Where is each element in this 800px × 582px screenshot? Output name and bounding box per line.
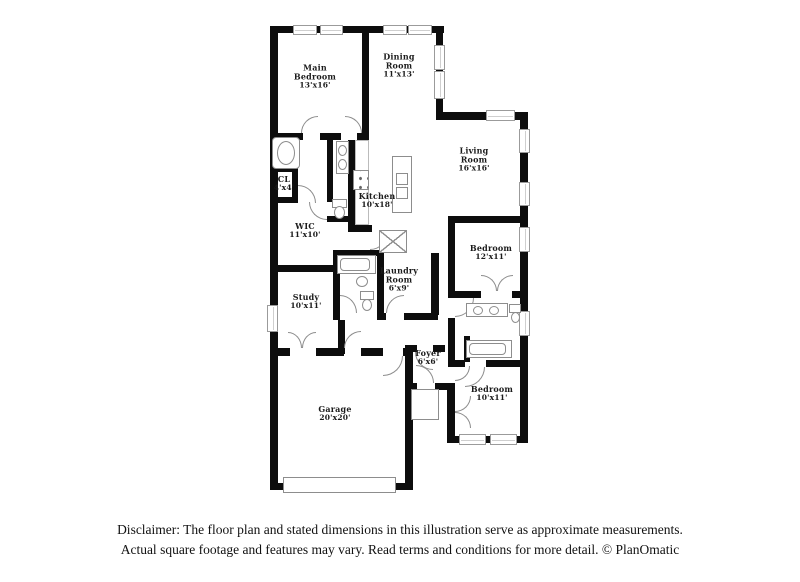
garage-door bbox=[283, 477, 396, 493]
wall-laundry-bottom-1 bbox=[377, 313, 386, 320]
door-arc-wic bbox=[309, 202, 327, 220]
room-label-study: Study 10'x11' bbox=[290, 293, 321, 311]
wall-garage-top-2 bbox=[316, 348, 344, 356]
room-dims: 11'x13' bbox=[383, 71, 414, 80]
window bbox=[434, 71, 445, 99]
room-dims: 16'x16' bbox=[458, 165, 489, 174]
wall-bedroom1-west-a bbox=[448, 216, 455, 298]
wall-wic-study bbox=[270, 265, 334, 272]
room-dims: 11'x10' bbox=[289, 231, 320, 240]
sink bbox=[338, 159, 347, 170]
room-label-garage: Garage 20'x20' bbox=[318, 405, 351, 423]
wall-mainbedroom-bottom-2 bbox=[320, 133, 341, 140]
door-arc-main-bath bbox=[301, 116, 318, 133]
room-dims: 4'x4' bbox=[274, 184, 295, 193]
room-label-kitchen: Kitchen 10'x18' bbox=[359, 192, 396, 210]
wall-garage-top-1 bbox=[270, 348, 290, 356]
window bbox=[519, 182, 530, 206]
room-dims: 10'x11' bbox=[290, 302, 321, 311]
room-dims: 12'x11' bbox=[470, 253, 512, 262]
room-label-bedroom-10x11: Bedroom 10'x11' bbox=[471, 385, 513, 403]
window bbox=[408, 25, 432, 35]
sink bbox=[338, 145, 347, 156]
door-arc-laundry bbox=[386, 295, 404, 313]
room-label-foyer: Foyer 6'x6' bbox=[415, 349, 441, 367]
wall-laundry-east bbox=[431, 253, 439, 315]
room-dims: 10'x11' bbox=[471, 394, 513, 403]
window bbox=[383, 25, 407, 35]
room-name: Dining Room bbox=[383, 53, 414, 71]
water-heater bbox=[379, 230, 407, 253]
toilet-bowl bbox=[334, 206, 345, 219]
wall-kitchen-bottom bbox=[348, 225, 372, 232]
window bbox=[434, 45, 445, 70]
toilet-bowl-bath3 bbox=[511, 312, 520, 323]
wall-mainbedroom-bottom-3 bbox=[357, 133, 369, 140]
room-name: Laundry Room bbox=[380, 267, 418, 285]
island-cooktop bbox=[396, 173, 408, 185]
door-arc-closet-cl bbox=[298, 185, 316, 203]
sink-bath2 bbox=[356, 276, 368, 287]
window bbox=[267, 305, 278, 332]
room-name: Main Bedroom bbox=[294, 64, 336, 82]
room-label-dining-room: Dining Room 11'x13' bbox=[383, 53, 414, 80]
room-label-closet: CL 4'x4' bbox=[274, 175, 295, 193]
window bbox=[490, 434, 517, 445]
room-dims: 6'x9' bbox=[380, 285, 418, 294]
wall-bedroom1-top bbox=[448, 216, 528, 223]
door-arc-study-bifold-left bbox=[288, 332, 302, 348]
front-porch bbox=[411, 389, 439, 420]
door-arc-hall bbox=[344, 331, 361, 348]
room-dims: 13'x16' bbox=[294, 82, 336, 91]
disclaimer-line-1: Disclaimer: The floor plan and stated di… bbox=[0, 520, 800, 540]
sink bbox=[489, 306, 499, 315]
window bbox=[293, 25, 317, 35]
room-label-living-room: Living Room 16'x16' bbox=[458, 147, 489, 174]
door-arc-bedroom1-closet-right bbox=[497, 275, 513, 291]
room-dims: 20'x20' bbox=[318, 414, 351, 423]
door-arc-bath2 bbox=[340, 295, 357, 313]
door-arc-garage-entry bbox=[383, 356, 403, 376]
door-arc-bedroom2-closet-top bbox=[455, 396, 471, 412]
wall-bath3-bottom-r bbox=[486, 360, 528, 367]
room-label-bedroom-12x11: Bedroom 12'x11' bbox=[470, 244, 512, 262]
floor-plan-illustration: Main Bedroom 13'x16' Dining Room 11'x13'… bbox=[0, 0, 800, 582]
window bbox=[519, 129, 530, 153]
wall-mainbedroom-dining bbox=[362, 26, 369, 140]
island-sink bbox=[396, 187, 408, 199]
disclaimer-line-2: Actual square footage and features may v… bbox=[0, 540, 800, 560]
wall-bedroom1-west-b bbox=[448, 318, 455, 362]
room-label-wic: WIC 11'x10' bbox=[289, 222, 320, 240]
window bbox=[459, 434, 486, 445]
door-arc-study-bifold-right bbox=[302, 332, 316, 348]
shower-basin bbox=[277, 141, 295, 165]
stove bbox=[353, 170, 369, 190]
room-dims: 10'x18' bbox=[359, 201, 396, 210]
wall-hall-west-low bbox=[447, 383, 455, 443]
wall-garage-top-4 bbox=[403, 348, 409, 356]
bathtub-bath2-inner bbox=[340, 258, 370, 271]
wall-outer-right bbox=[520, 112, 528, 443]
room-label-laundry-room: Laundry Room 6'x9' bbox=[380, 267, 418, 294]
wall-mainbath-divider bbox=[327, 140, 333, 202]
toilet-bowl-bath2 bbox=[362, 299, 372, 311]
window bbox=[486, 110, 515, 121]
window bbox=[519, 227, 530, 252]
door-arc-bedroom2-closet-bottom bbox=[455, 412, 471, 428]
bathtub-bath3-inner bbox=[469, 343, 506, 355]
room-name: Living Room bbox=[460, 147, 489, 165]
disclaimer: Disclaimer: The floor plan and stated di… bbox=[0, 520, 800, 559]
door-arc-main-bedroom bbox=[345, 116, 362, 133]
wall-garage-top-3 bbox=[361, 348, 383, 356]
wall-bedroom1-closet-l bbox=[455, 291, 481, 298]
room-label-main-bedroom: Main Bedroom 13'x16' bbox=[294, 64, 336, 91]
wall-bedroom1-closet-r bbox=[512, 291, 528, 298]
wall-closet-bottom bbox=[271, 197, 298, 203]
window bbox=[519, 311, 530, 336]
door-arc-bedroom1-closet-left bbox=[481, 275, 497, 291]
room-dims: 6'x6' bbox=[415, 358, 441, 367]
sink bbox=[473, 306, 483, 315]
wall-outer-left bbox=[270, 26, 278, 490]
window bbox=[320, 25, 343, 35]
